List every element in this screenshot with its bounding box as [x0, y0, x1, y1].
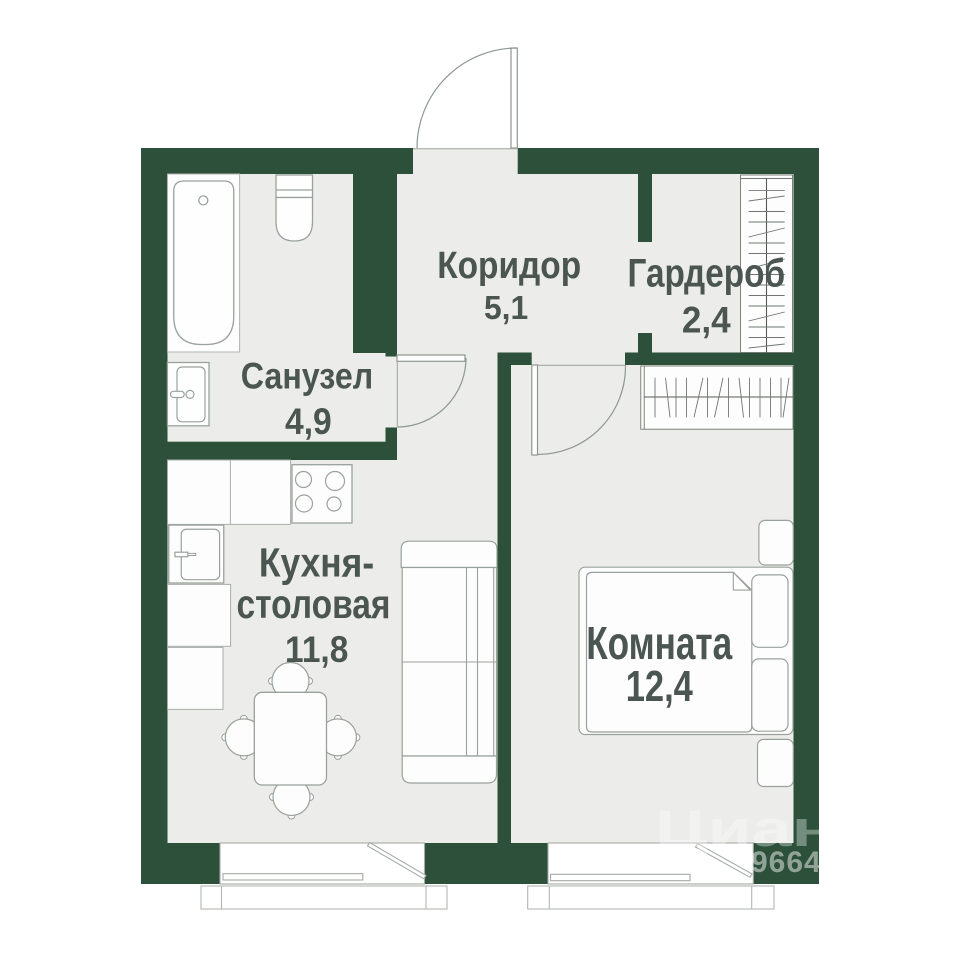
svg-text:столовая: столовая: [237, 581, 391, 627]
svg-text:5,1: 5,1: [484, 289, 528, 326]
svg-text:Комната: Комната: [586, 617, 732, 669]
svg-text:Коридор: Коридор: [437, 244, 581, 286]
svg-text:4,9: 4,9: [285, 401, 332, 442]
svg-text:Кухня-: Кухня-: [259, 540, 374, 586]
svg-text:2,4: 2,4: [682, 299, 731, 341]
svg-text:96643: 96643: [751, 846, 839, 879]
svg-text:Гардероб: Гардероб: [628, 252, 786, 296]
svg-text:Санузел: Санузел: [241, 355, 374, 396]
svg-text:11,8: 11,8: [285, 628, 348, 670]
svg-text:12,4: 12,4: [626, 662, 694, 711]
